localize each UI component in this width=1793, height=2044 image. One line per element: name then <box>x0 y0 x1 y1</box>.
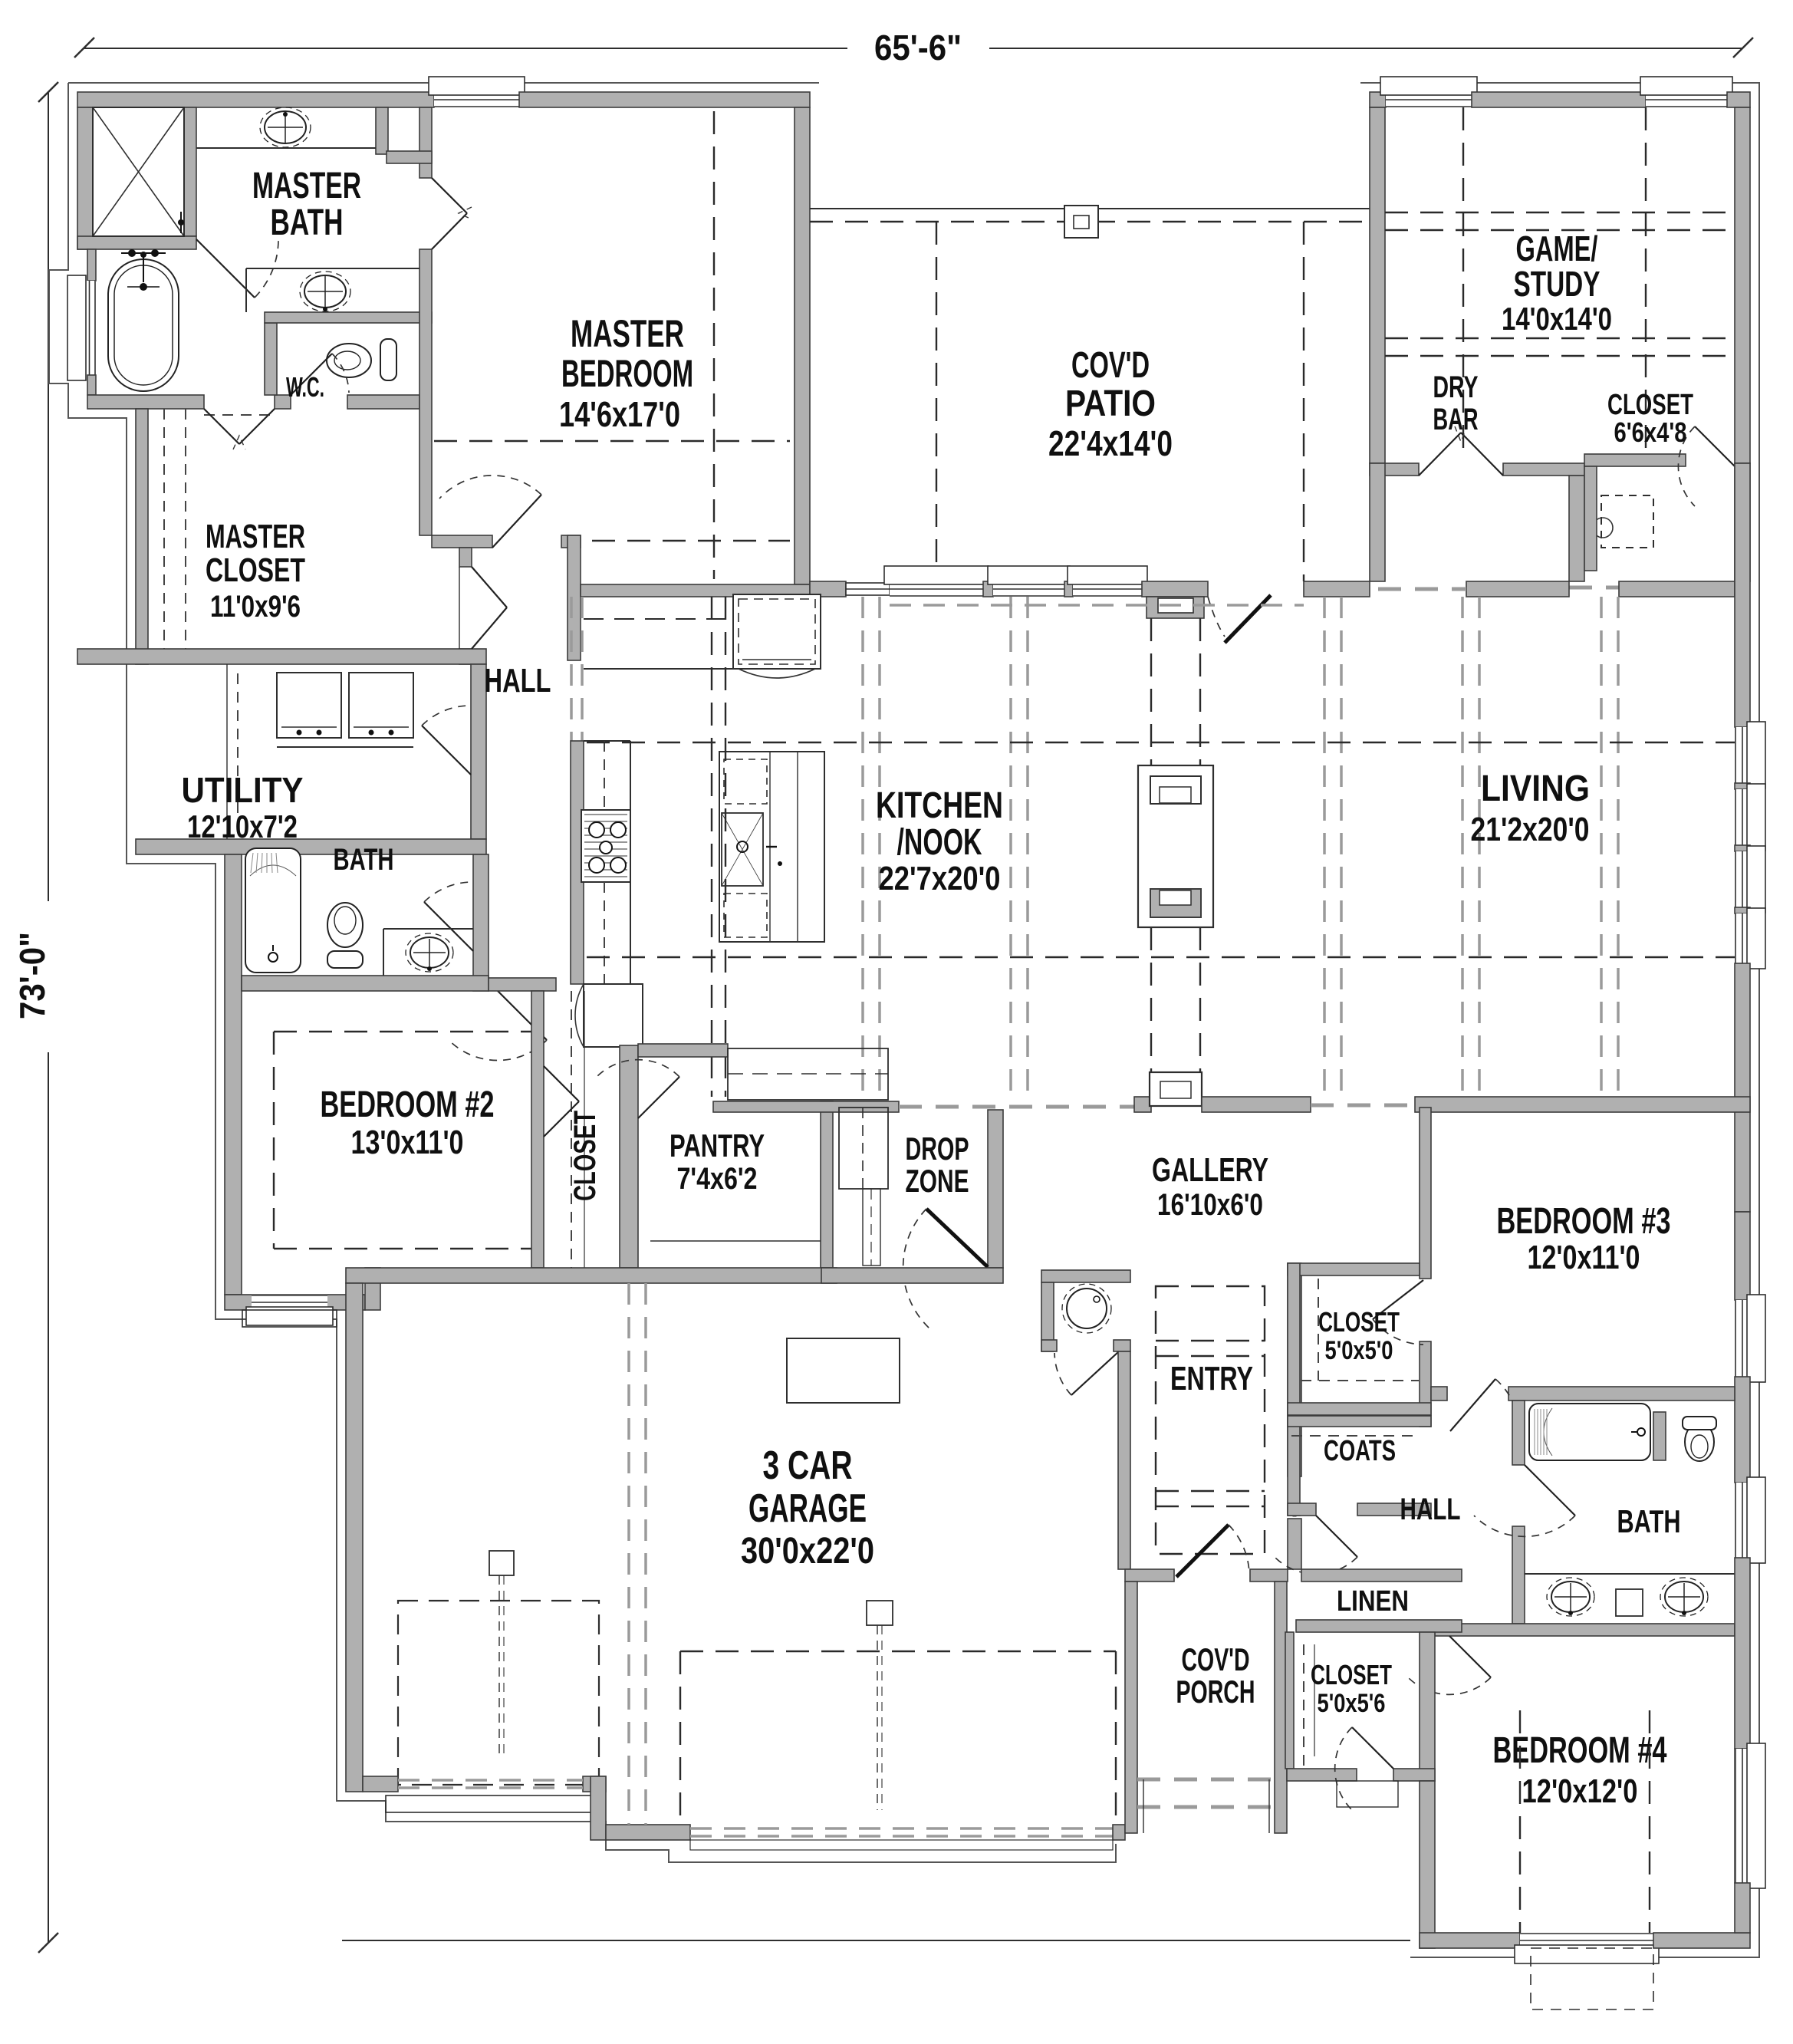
svg-text:22'4x14'0: 22'4x14'0 <box>1048 423 1173 463</box>
svg-text:7'4x6'2: 7'4x6'2 <box>677 1162 758 1196</box>
svg-text:HALL: HALL <box>485 662 551 699</box>
svg-text:12'10x7'2: 12'10x7'2 <box>187 808 298 844</box>
svg-text:MASTER: MASTER <box>206 518 305 555</box>
svg-text:13'0x11'0: 13'0x11'0 <box>351 1124 464 1161</box>
svg-text:BATH: BATH <box>271 202 344 243</box>
svg-text:COV'D: COV'D <box>1071 345 1150 386</box>
svg-text:PATIO: PATIO <box>1065 383 1156 424</box>
svg-text:22'7x20'0: 22'7x20'0 <box>879 860 1001 897</box>
svg-text:GAME/: GAME/ <box>1516 229 1598 268</box>
svg-text:LINEN: LINEN <box>1337 1585 1409 1618</box>
svg-text:14'0x14'0: 14'0x14'0 <box>1502 301 1612 337</box>
svg-text:MASTER: MASTER <box>571 312 684 355</box>
svg-text:ENTRY: ENTRY <box>1170 1360 1253 1397</box>
svg-text:6'6x4'8: 6'6x4'8 <box>1614 416 1687 448</box>
svg-text:BEDROOM #4: BEDROOM #4 <box>1493 1730 1667 1771</box>
svg-text:30'0x22'0: 30'0x22'0 <box>741 1531 874 1572</box>
svg-text:CLOSET: CLOSET <box>1311 1659 1392 1690</box>
svg-text:ZONE: ZONE <box>906 1163 969 1199</box>
svg-text:73'-0": 73'-0" <box>12 932 52 1019</box>
svg-text:DRY: DRY <box>1433 370 1479 404</box>
svg-text:16'10x6'0: 16'10x6'0 <box>1157 1188 1263 1222</box>
svg-text:UTILITY: UTILITY <box>182 770 304 810</box>
svg-text:GARAGE: GARAGE <box>748 1486 867 1531</box>
svg-text:COATS: COATS <box>1324 1435 1396 1467</box>
svg-text:PORCH: PORCH <box>1176 1674 1255 1710</box>
svg-text:14'6x17'0: 14'6x17'0 <box>559 394 680 434</box>
svg-text:W.C.: W.C. <box>286 371 324 403</box>
svg-text:/NOOK: /NOOK <box>897 822 982 863</box>
svg-text:GALLERY: GALLERY <box>1152 1151 1268 1189</box>
svg-text:BEDROOM #2: BEDROOM #2 <box>321 1085 495 1125</box>
svg-text:BAR: BAR <box>1433 403 1479 436</box>
svg-text:MASTER: MASTER <box>252 166 361 206</box>
svg-text:KITCHEN: KITCHEN <box>876 785 1003 826</box>
svg-text:CLOSET: CLOSET <box>206 551 305 589</box>
svg-text:STUDY: STUDY <box>1514 264 1601 304</box>
svg-text:21'2x20'0: 21'2x20'0 <box>1471 811 1590 848</box>
svg-text:DROP: DROP <box>906 1131 969 1167</box>
svg-text:HALL: HALL <box>1400 1493 1461 1526</box>
svg-text:5'0x5'0: 5'0x5'0 <box>1325 1336 1393 1365</box>
svg-text:BATH: BATH <box>1617 1503 1681 1539</box>
svg-text:12'0x12'0: 12'0x12'0 <box>1522 1772 1638 1810</box>
svg-text:5'0x5'6: 5'0x5'6 <box>1318 1689 1386 1718</box>
svg-text:BEDROOM #3: BEDROOM #3 <box>1497 1201 1671 1242</box>
svg-text:BATH: BATH <box>334 843 394 877</box>
svg-text:CLOSET: CLOSET <box>1318 1306 1400 1338</box>
svg-text:PANTRY: PANTRY <box>669 1127 765 1164</box>
svg-text:BEDROOM: BEDROOM <box>561 352 693 395</box>
svg-text:65'-6": 65'-6" <box>874 28 962 67</box>
svg-text:COV'D: COV'D <box>1182 1641 1250 1677</box>
svg-text:LIVING: LIVING <box>1481 769 1590 809</box>
svg-text:11'0x9'6: 11'0x9'6 <box>210 590 301 624</box>
svg-text:12'0x11'0: 12'0x11'0 <box>1528 1239 1640 1276</box>
svg-text:CLOSET: CLOSET <box>568 1111 602 1201</box>
svg-text:3 CAR: 3 CAR <box>763 1443 853 1488</box>
